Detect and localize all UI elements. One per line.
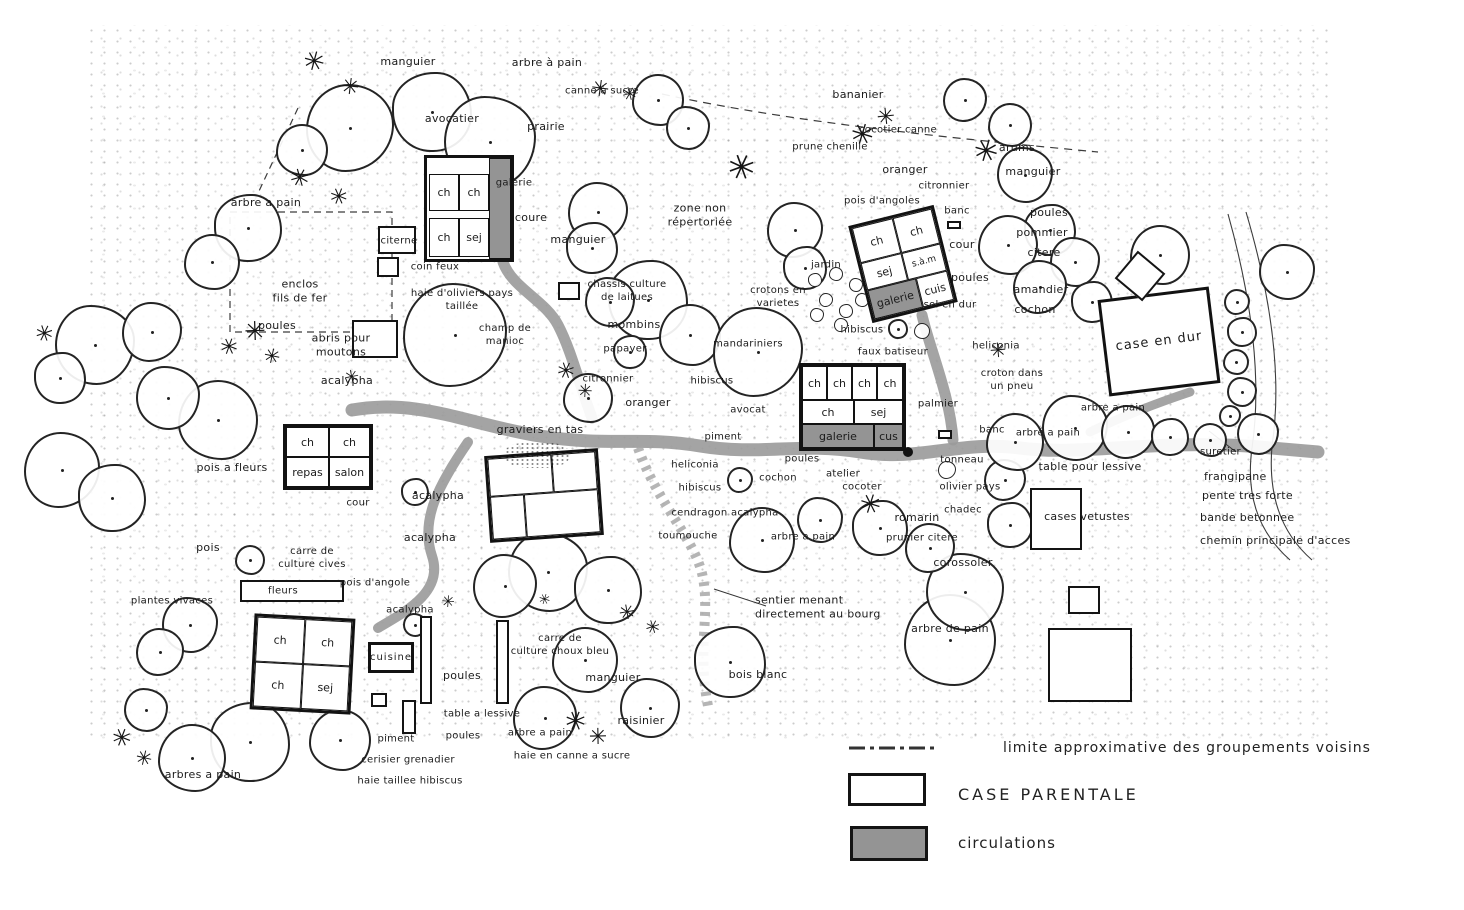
map-label: oranger: [625, 396, 670, 410]
map-label: piment: [377, 733, 414, 746]
shrub-icon: ✳: [441, 594, 455, 611]
map-label: citere: [1027, 246, 1060, 260]
annexe-petite: [371, 693, 387, 707]
map-label: acalypha: [404, 531, 456, 545]
map-label: arums: [999, 141, 1035, 155]
map-label: arbre a pain: [231, 196, 301, 210]
map-label: arbres a pain: [165, 768, 241, 782]
tree: [1227, 317, 1257, 347]
map-label: chadec: [944, 504, 982, 517]
house-label: cuisine: [371, 645, 411, 670]
map-label: cocotier canne: [859, 124, 937, 137]
room: [489, 158, 511, 259]
map-label: fleurs: [268, 585, 298, 598]
site-plan-map: ✳✳✳✳✳✳✳✳✳✳✳✳✳✳✳✳✳✳✳✳✳✳✳✳✳✳✳ chchchsejchc…: [0, 0, 1464, 910]
room-ch: ch: [802, 400, 854, 424]
room-ch: ch: [429, 174, 459, 211]
banc-box-2: [947, 221, 961, 229]
case-vetuste-2: [1068, 586, 1100, 614]
map-label: frangipane: [1204, 470, 1267, 484]
sechoir-2: [496, 620, 509, 704]
map-label: abris pour moutons: [312, 332, 371, 361]
tree: [694, 626, 766, 698]
map-label: chemin principale d'acces: [1200, 534, 1351, 548]
tree: [566, 222, 618, 274]
tree: [34, 352, 86, 404]
map-label: oranger: [882, 163, 927, 177]
map-label: bananier: [832, 88, 883, 102]
room-ch: ch: [852, 366, 877, 400]
map-label: manguier: [380, 55, 435, 69]
room-cus: cus: [874, 424, 903, 448]
map-label: jardin: [811, 259, 841, 272]
sechoir-1: [420, 616, 432, 704]
map-label: table pour lessive: [1038, 460, 1141, 474]
map-label: canne à sucre: [565, 85, 639, 98]
map-label: acalypha: [386, 604, 434, 617]
map-label: atelier: [826, 468, 860, 481]
map-label: prune chenille: [792, 141, 867, 154]
map-label: cerisier grenadier: [361, 754, 455, 767]
map-label: citronnier: [583, 373, 634, 386]
map-label: suretier: [1200, 446, 1241, 459]
room-ch: ch: [802, 366, 827, 400]
map-label: poules: [446, 730, 481, 743]
map-label: toumouche: [658, 530, 717, 543]
room-ch: ch: [303, 619, 352, 666]
table-lessive-box: [402, 700, 416, 734]
map-label: bande betonnee: [1200, 511, 1294, 525]
map-label: sentier menant directement au bourg: [755, 594, 881, 623]
case-parentale-sud: chchchsej: [250, 613, 356, 714]
map-label: haie taillee hibiscus: [357, 775, 462, 788]
room-sej: sej: [459, 218, 489, 257]
map-label: citerne: [381, 235, 418, 248]
tree: [1223, 349, 1249, 375]
map-label: arbré a pain: [1016, 427, 1080, 440]
map-label: crotons en varietes: [750, 284, 806, 310]
map-label: heliconia: [671, 459, 719, 472]
map-label: graviers en tas: [497, 423, 584, 437]
room-repas: repas: [286, 457, 329, 487]
map-label: pente tres forte: [1202, 489, 1293, 503]
map-label: cendragon acalypha: [671, 507, 778, 520]
map-label: sol en dur: [924, 299, 977, 312]
shrub-icon: ✳: [589, 727, 608, 749]
map-label: pommier: [1016, 226, 1068, 240]
map-label: corossoler: [933, 556, 992, 570]
room-ch: ch: [286, 427, 329, 457]
map-label: hibiscus: [679, 482, 722, 495]
map-label: poules: [443, 669, 481, 683]
map-label: raisinier: [617, 714, 664, 728]
tree: [987, 502, 1033, 548]
map-label: cour: [346, 497, 369, 510]
map-label: poules: [951, 271, 989, 285]
map-label: hibiscus: [691, 375, 734, 388]
map-label: poules: [785, 453, 820, 466]
map-label: avocatier: [425, 112, 479, 126]
map-label: zone non répertoriée: [668, 202, 733, 231]
case-vetuste-3: [1048, 628, 1132, 702]
map-label: arbre a pain: [1081, 402, 1145, 415]
map-label: table a lessive: [444, 708, 521, 721]
tree: [888, 319, 908, 339]
map-label: poules: [1030, 206, 1068, 220]
tree: [986, 413, 1044, 471]
map-label: cochon: [759, 472, 797, 485]
map-label: papayer: [603, 343, 646, 356]
room: [524, 489, 601, 537]
map-label: plantes vivaces: [131, 595, 213, 608]
map-label: bois blanc: [729, 668, 788, 682]
room-ch: ch: [877, 366, 903, 400]
map-label: acalypha: [321, 374, 373, 388]
map-label: faux batiseur: [858, 346, 928, 359]
map-label: cochon: [1014, 303, 1055, 317]
cuisine-annexe: cuisine: [368, 642, 414, 673]
map-label: arbre à pain: [512, 56, 582, 70]
tree: [659, 304, 721, 366]
room-ch: ch: [827, 366, 852, 400]
shrub-icon: ✳: [617, 601, 637, 624]
map-label: enclos fils de fer: [273, 278, 328, 307]
coin-feux-box: [377, 257, 399, 277]
map-label: manguier: [550, 233, 605, 247]
map-label: manguier: [585, 671, 640, 685]
map-label: croton dans un pneu: [981, 367, 1043, 393]
banc-box: [938, 430, 952, 439]
map-label: carre de culture cives: [278, 545, 346, 571]
map-label: banc: [944, 205, 970, 218]
map-label: galerie: [496, 177, 533, 190]
map-label: mombins: [607, 318, 660, 332]
map-label: banc: [979, 424, 1005, 437]
tree: [808, 273, 822, 287]
map-label: hibiscus: [841, 324, 884, 337]
map-label: pois: [196, 541, 220, 555]
map-label: pois d'angole: [340, 577, 411, 590]
map-label: mandariniers: [713, 338, 783, 351]
case-parentale-ouest: chchrepassalon: [283, 424, 373, 490]
room-sej: sej: [301, 664, 350, 711]
map-label: coin feux: [411, 261, 460, 274]
map-label: manguier: [1005, 165, 1060, 179]
map-label: citronnier: [919, 180, 970, 193]
map-label: romarin: [894, 511, 939, 525]
map-label: arbre de pain: [911, 622, 989, 636]
map-label: coure: [515, 211, 547, 225]
room-galerie: galerie: [802, 424, 874, 448]
graviers-patch: [505, 442, 569, 468]
case-parentale-nord: chchchsej: [424, 155, 514, 262]
shrub-icon: ✳: [340, 76, 361, 100]
tree: [78, 464, 146, 532]
room-sej: sej: [854, 400, 903, 424]
map-label: chassis culture de laitues: [588, 278, 667, 304]
map-label: pois a fleurs: [196, 461, 267, 475]
map-label: carre de culture choux bleu: [511, 632, 610, 658]
map-label: haie en canne a sucre: [514, 750, 631, 763]
case-parentale-centrale: chchchchchsejgaleriecus: [799, 363, 906, 451]
tree: [184, 234, 240, 290]
map-label: acalypha: [412, 489, 464, 503]
map-label: tonneau: [940, 454, 983, 467]
map-label: prairie: [527, 120, 565, 134]
room-ch: ch: [255, 617, 305, 664]
room-ch: ch: [253, 662, 303, 709]
map-label: prunier citere: [886, 532, 958, 545]
map-label: poules: [258, 319, 296, 333]
map-label: cour: [949, 238, 974, 252]
tree: [235, 545, 265, 575]
case-en-dur: case en dur: [1098, 287, 1221, 397]
room-ch: ch: [329, 427, 370, 457]
map-label: champ de manioc: [479, 322, 531, 348]
map-label: haie d'oliviers pays taillée: [411, 287, 513, 313]
room-ch: ch: [429, 218, 459, 257]
room: [490, 494, 527, 539]
map-label: arbre a pain: [508, 727, 572, 740]
tree: [1151, 418, 1189, 456]
map-label: cases vetustes: [1044, 510, 1130, 524]
map-label: heliconia: [972, 340, 1020, 353]
tree: [914, 323, 930, 339]
map-label: cocoter: [842, 481, 882, 494]
map-label: avocat: [730, 404, 766, 417]
map-label: olivier pays: [939, 481, 1000, 494]
room-ch: ch: [459, 174, 489, 211]
chassis-box: [558, 282, 580, 300]
map-label: arbre a pain: [771, 531, 835, 544]
map-label: pois d'angoles: [844, 195, 920, 208]
map-label: amandier: [1014, 283, 1069, 297]
room-salon: salon: [329, 457, 370, 487]
house-label: case en dur: [1101, 290, 1217, 393]
tree: [839, 304, 853, 318]
map-label: piment: [704, 431, 741, 444]
map-label: palmier: [918, 398, 958, 411]
marker-dot: [903, 447, 913, 457]
